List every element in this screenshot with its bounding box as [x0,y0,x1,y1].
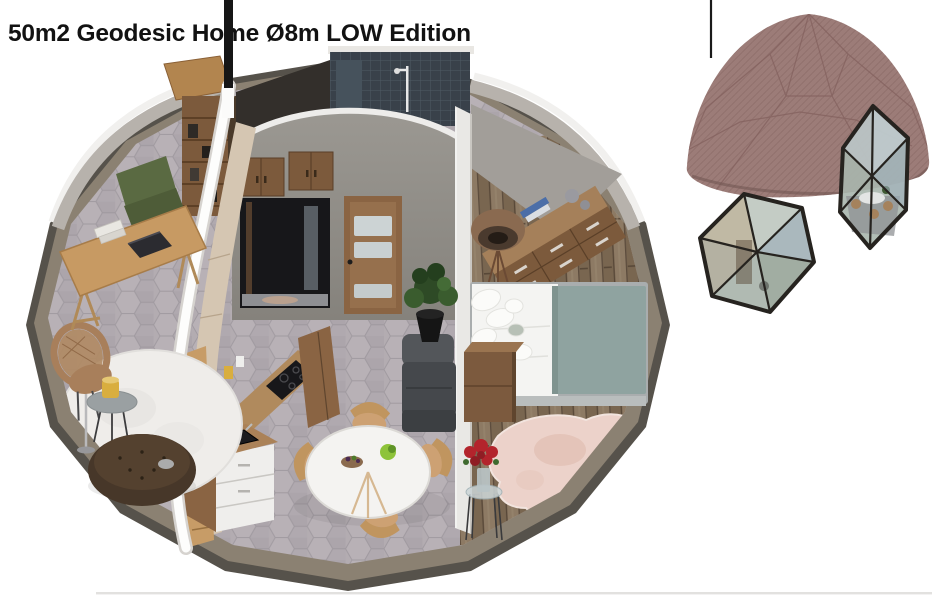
vase [580,200,590,210]
shower-head [394,68,400,74]
armchair [402,334,456,432]
geodesic-home-render: 50m2 Geodesic Home Ø8m LOW Edition [0,0,932,596]
center-mast [224,0,233,88]
shower-pipe [406,66,409,112]
cropped-bottom-edge [96,592,932,594]
mirror [304,206,318,290]
dome-window-left [700,194,814,312]
door-handle [348,260,353,265]
kitchen-jar [236,356,244,367]
page-title: 50m2 Geodesic Home Ø8m LOW Edition [8,20,471,47]
bathroom-doorway [240,198,330,308]
floor-plan-figure [26,46,670,591]
partition-wall [455,106,471,534]
pouf-ottoman [88,434,196,506]
vase [565,189,579,203]
render-canvas: 50m2 Geodesic Home Ø8m LOW Edition [0,0,932,596]
dome-exterior-figure [680,0,932,312]
bathroom-door [344,196,402,314]
bed-blanket [556,286,646,394]
flower-vase [477,468,490,492]
nightstand [464,342,524,422]
kitchen-jar [224,366,233,379]
bath-rug [262,296,298,304]
